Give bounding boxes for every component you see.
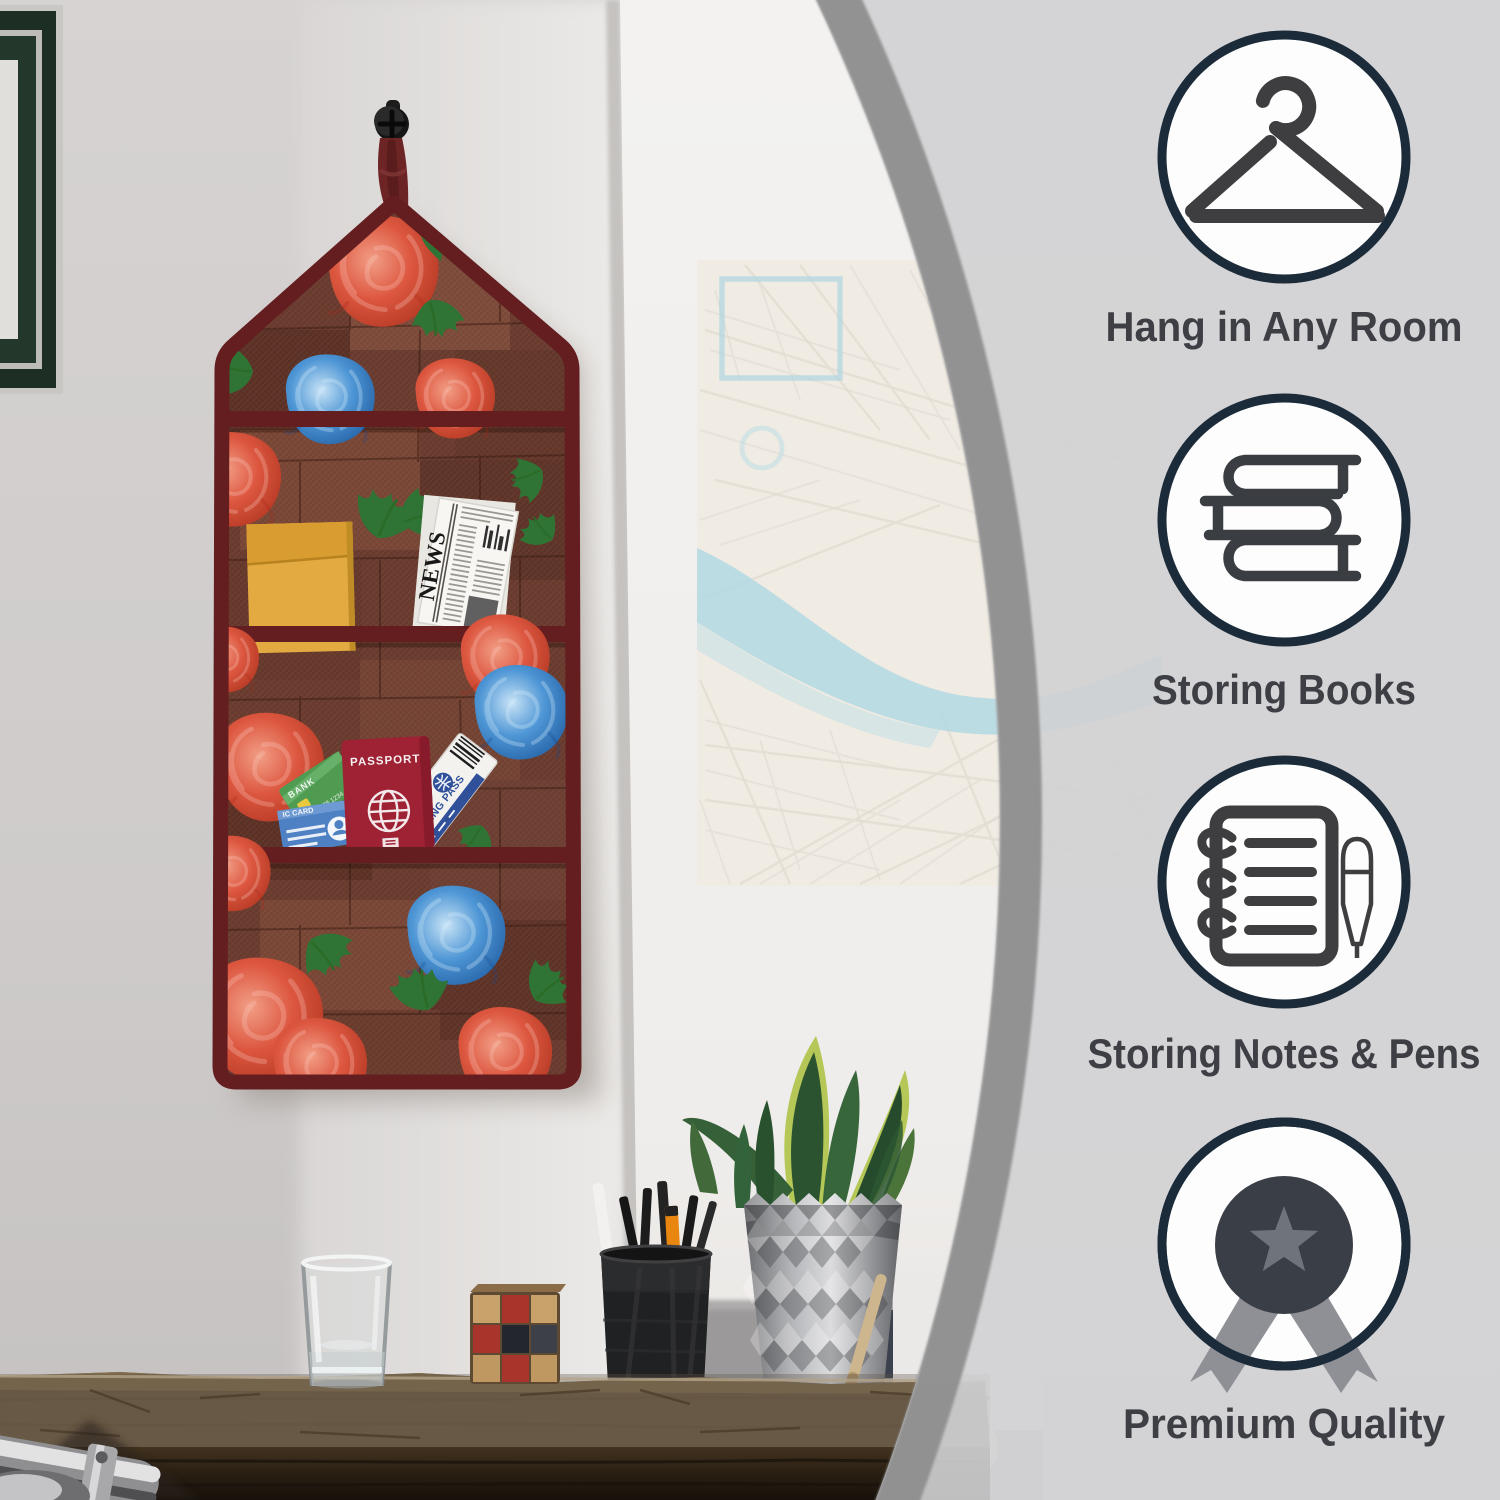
svg-text:Premium Quality: Premium Quality: [1123, 1400, 1446, 1447]
svg-text:Storing Books: Storing Books: [1152, 666, 1416, 713]
svg-text:Hang in Any Room: Hang in Any Room: [1106, 303, 1463, 350]
svg-text:Storing Notes & Pens: Storing Notes & Pens: [1088, 1030, 1481, 1077]
